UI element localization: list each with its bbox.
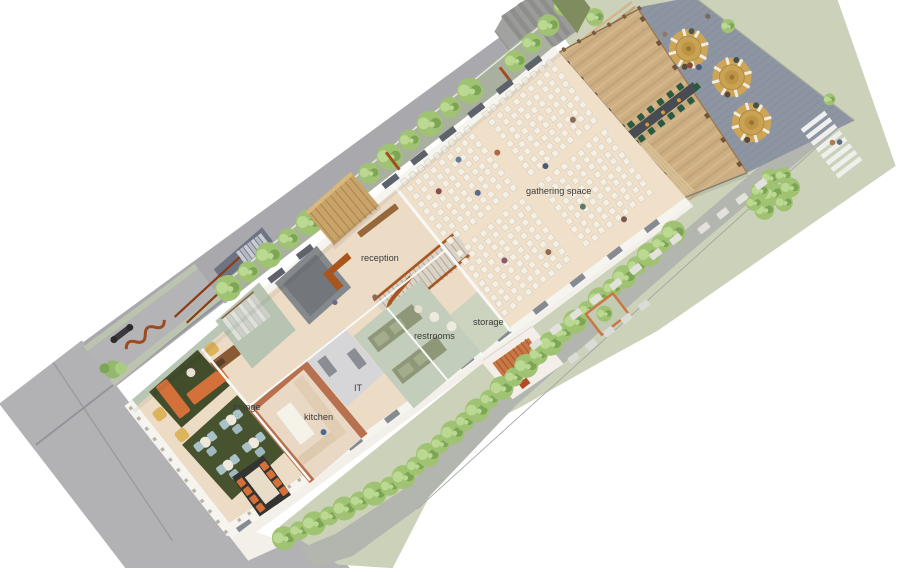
svg-text:IT: IT xyxy=(354,383,363,393)
svg-text:restrooms: restrooms xyxy=(414,331,455,341)
svg-text:reception: reception xyxy=(361,253,399,263)
svg-text:lounge: lounge xyxy=(233,402,261,412)
svg-text:storage: storage xyxy=(473,317,504,327)
svg-text:kitchen: kitchen xyxy=(304,412,333,422)
svg-text:gathering space: gathering space xyxy=(526,186,591,196)
